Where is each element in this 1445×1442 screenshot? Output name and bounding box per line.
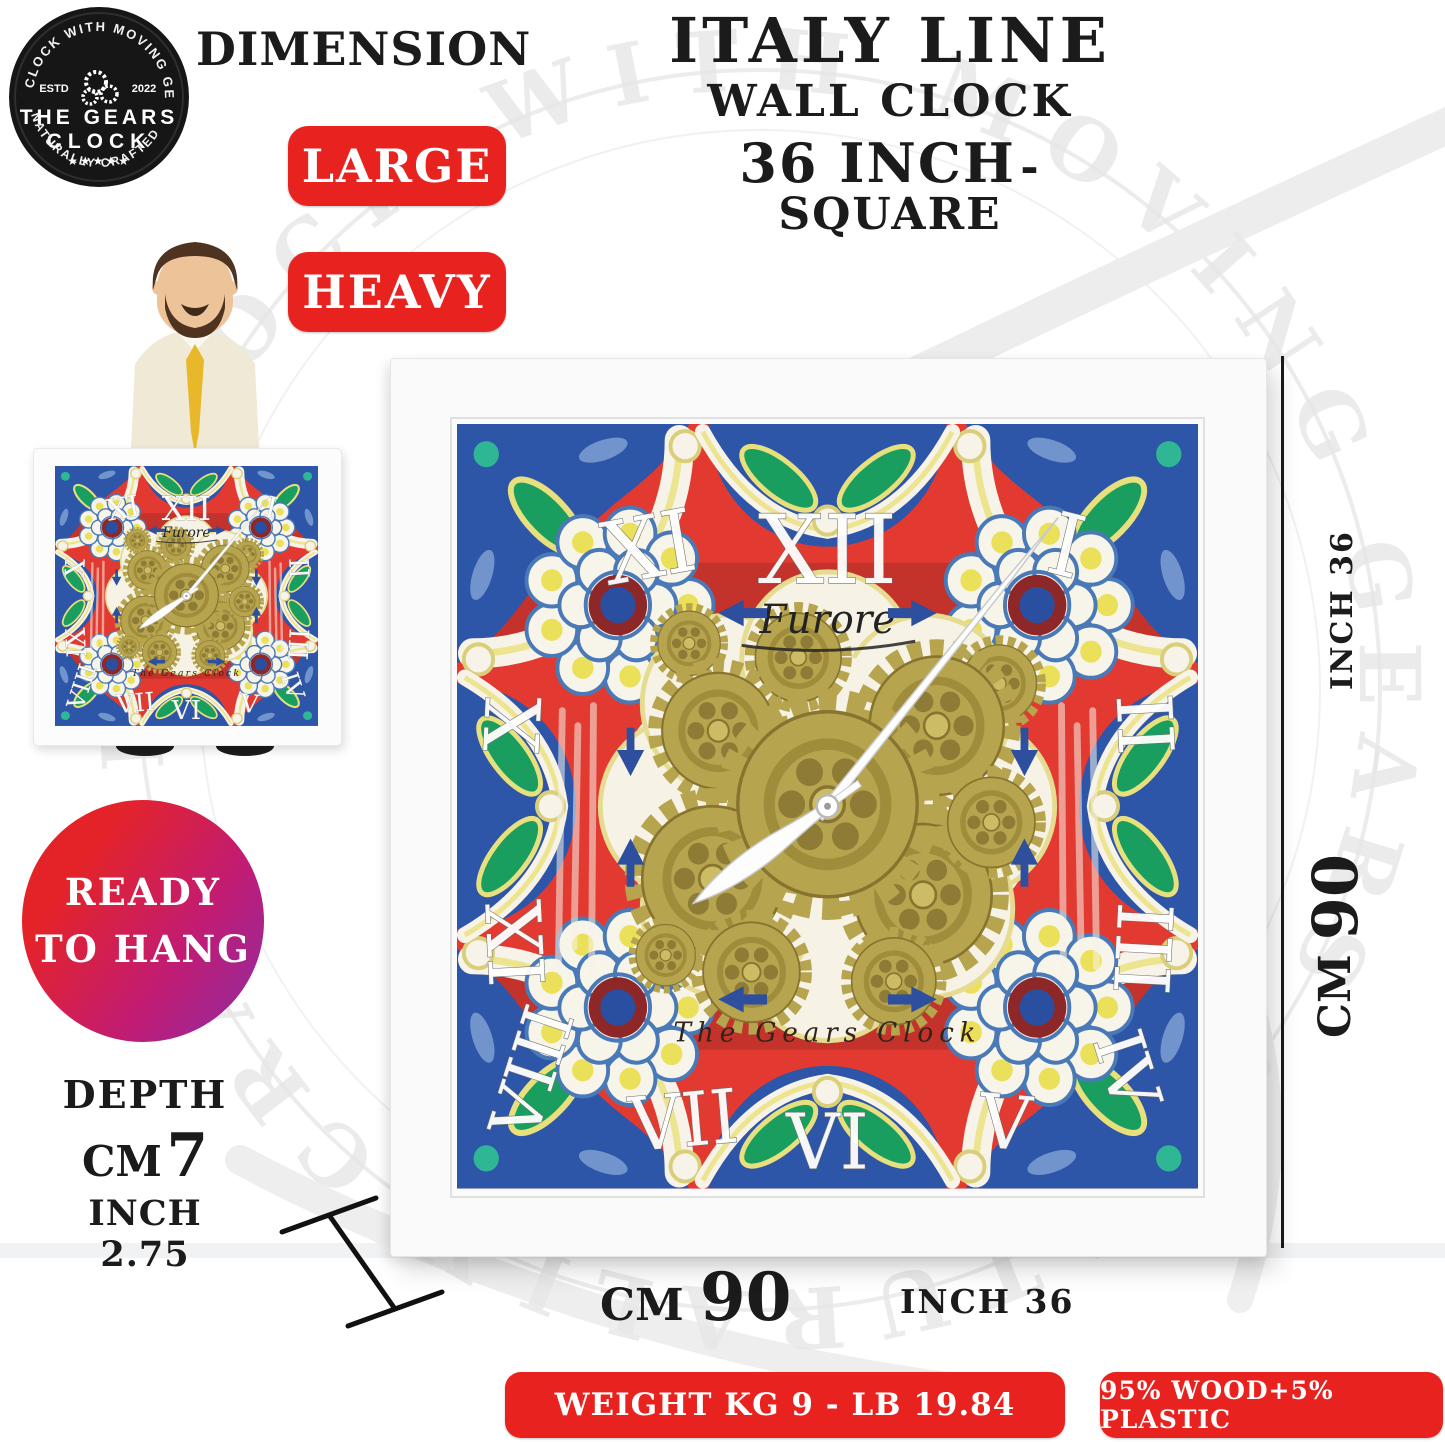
badge-large: LARGE (288, 126, 506, 206)
width-cm-unit: CM (600, 1280, 684, 1331)
height-dimension-line (1281, 356, 1284, 1248)
height-cm-value: 90 (1299, 854, 1372, 940)
dimension-heading: DIMENSION (196, 22, 531, 76)
height-inch-label: INCH 36 (1322, 510, 1362, 710)
badge-ready-to-hang: READY TO HANG (22, 800, 264, 1042)
depth-label: DEPTH (40, 1072, 250, 1117)
title-wall-clock: WALL CLOCK (630, 79, 1150, 125)
logo-year: 2022 (132, 83, 156, 95)
depth-spec: DEPTH CM 7 INCH 2.75 (40, 1072, 250, 1275)
width-cm-label: CM 90 (600, 1258, 792, 1336)
ready-line-1: READY (65, 864, 221, 921)
title-size-inches: 36 INCH (739, 131, 1016, 195)
depth-cm-value: 7 (166, 1121, 208, 1191)
small-clock-preview (33, 448, 342, 746)
main-clock-photo (390, 358, 1267, 1257)
ready-line-2: TO HANG (35, 921, 251, 978)
badge-weight: WEIGHT KG 9 - LB 19.84 (505, 1372, 1065, 1438)
depth-cm-unit: CM (82, 1137, 162, 1186)
title-italy-line: ITALY LINE (630, 8, 1150, 73)
product-title-block: ITALY LINE WALL CLOCK 36 INCH - SQUARE (630, 8, 1150, 238)
depth-inch-value: 2.75 (100, 1234, 189, 1275)
product-infographic: { "logo": { "arc_top": "CLOCK WITH MOVIN… (0, 0, 1445, 1442)
height-cm-label: CM 90 (1304, 816, 1366, 1076)
logo-estd: ESTD (39, 83, 68, 95)
badge-heavy: HEAVY (288, 252, 506, 332)
depth-inch-unit: INCH (88, 1193, 201, 1234)
width-inch-label: INCH 36 (900, 1282, 1074, 1321)
title-size-line: 36 INCH - SQUARE (630, 135, 1150, 238)
height-cm-unit: CM (1310, 954, 1361, 1038)
badge-material: 95% WOOD+5% PLASTIC (1100, 1372, 1443, 1438)
width-cm-value: 90 (700, 1258, 792, 1336)
brand-logo: CLOCK WITH MOVING GEARS ESTD 2022 THE GE… (6, 4, 192, 190)
